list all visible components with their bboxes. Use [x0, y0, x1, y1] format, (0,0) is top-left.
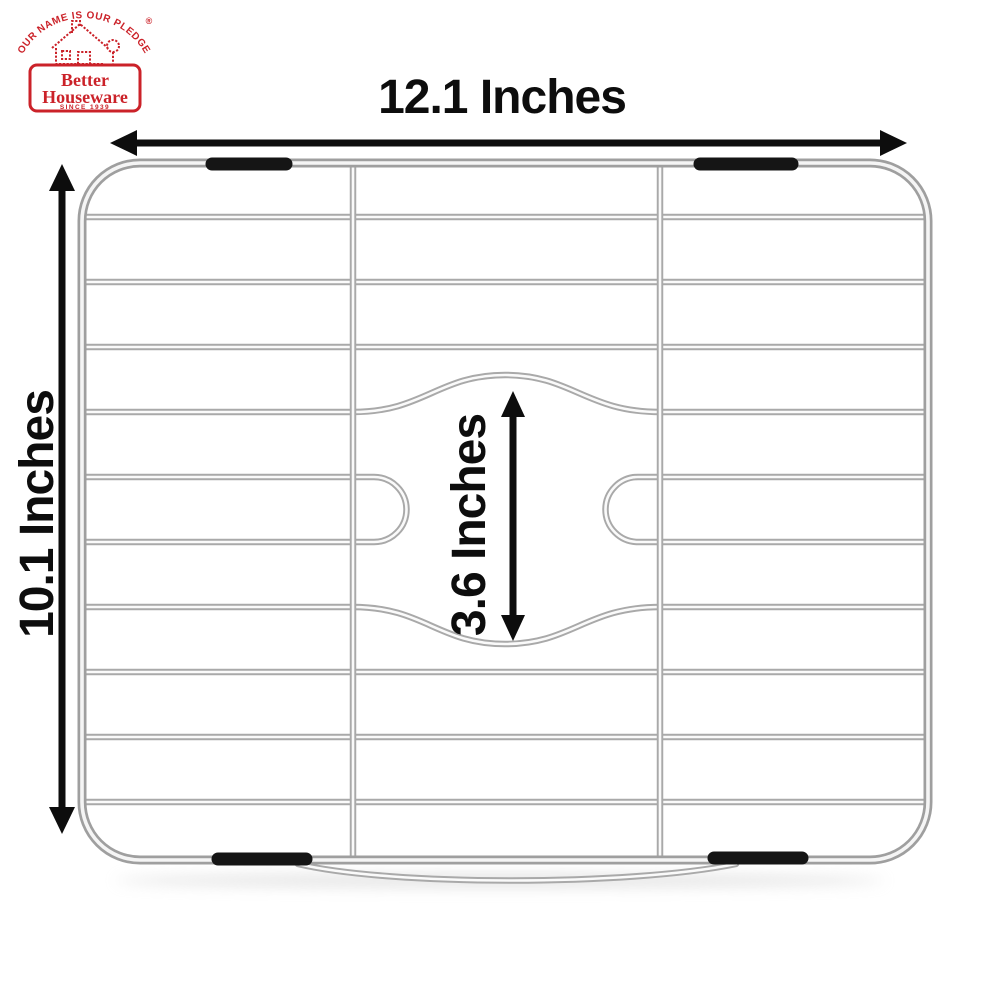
brand-logo: "OUR NAME IS OUR PLEDGE" ® Better Housew… [12, 2, 180, 128]
house-icon [52, 21, 119, 64]
door [78, 52, 90, 64]
grid-vertical-wires [353, 167, 660, 857]
grid-frame [82, 163, 928, 860]
grid-frame-highlight [82, 163, 928, 860]
grid-wire-highlight [86, 375, 924, 412]
arrow-down-head-icon [501, 615, 525, 641]
grid-wire-highlight [86, 477, 407, 542]
roof [52, 24, 108, 48]
brand-pledge-arc: "OUR NAME IS OUR PLEDGE" [12, 2, 152, 56]
drain-opening-bottom-wire [86, 607, 924, 644]
drain-opening-arrow [501, 391, 525, 641]
window [62, 51, 70, 59]
arrow-up-head-icon [501, 391, 525, 417]
grid-horizontal-wires [86, 217, 924, 802]
arrow-down-head-icon [49, 807, 75, 834]
brand-pledge-text: "OUR NAME IS OUR PLEDGE" [12, 2, 152, 56]
arrow-right-head-icon [880, 130, 907, 156]
height-dimension-label: 10.1 Inches [12, 364, 64, 664]
drain-opening-dimension-label: 3.6 Inches [444, 375, 496, 675]
tree-top [107, 40, 119, 52]
width-dimension-label: 12.1 Inches [302, 70, 702, 125]
grid-wire-highlight [606, 477, 925, 542]
registered-mark: ® [146, 16, 153, 26]
brand-since: SINCE 1939 [60, 104, 110, 111]
arrow-left-head-icon [110, 130, 137, 156]
arrow-up-head-icon [49, 164, 75, 191]
u-loop-right [606, 477, 925, 542]
product-dimension-image: "OUR NAME IS OUR PLEDGE" ® Better Housew… [0, 0, 1000, 1000]
drain-opening-top-wire [86, 375, 924, 412]
sink-grid-diagram [0, 0, 1000, 1000]
u-loop-left [86, 477, 407, 542]
grid-wire-highlight [86, 607, 924, 644]
width-arrow [110, 130, 907, 156]
